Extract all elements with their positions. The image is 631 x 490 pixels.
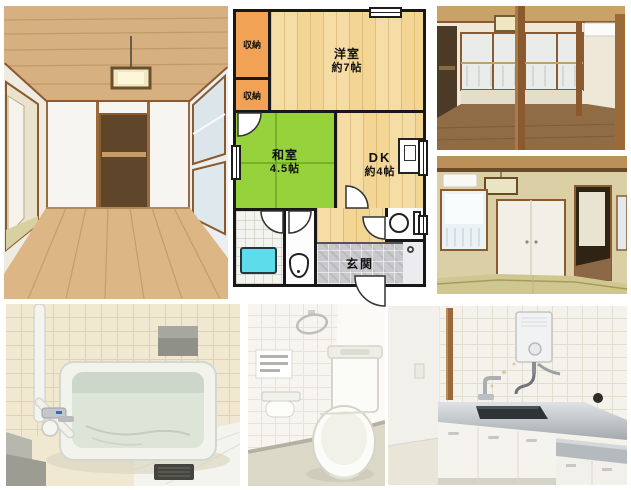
- instruction-sticker: [256, 350, 292, 378]
- side-window: [617, 196, 627, 250]
- doorway-to-wood-room: [575, 186, 611, 280]
- ceiling: [437, 6, 625, 22]
- wall-fitting: [593, 393, 603, 403]
- tatami-room-illustration: [437, 156, 627, 294]
- bathtub: [60, 362, 216, 460]
- bathroom-illustration: [6, 304, 240, 486]
- air-conditioner: [584, 23, 617, 36]
- window: [441, 190, 487, 250]
- floorplan: 収納 収納 洋室 約7帖 和室 4.5帖 DK 約4帖: [233, 9, 426, 287]
- photo-kitchen: [388, 306, 627, 485]
- photo-upper-room: [437, 6, 625, 150]
- wood-pole: [446, 308, 453, 400]
- photo-toilet: [248, 304, 385, 486]
- door-swing-arcs: [236, 12, 423, 284]
- wall-vent: [158, 326, 198, 356]
- outlet: [415, 364, 424, 378]
- living-room-illustration: [4, 6, 228, 299]
- photo-tatami-room: [437, 156, 627, 294]
- air-conditioner: [443, 174, 477, 187]
- kitchen-illustration: [388, 306, 627, 485]
- window-marker: [418, 140, 428, 176]
- toilet-illustration: [248, 304, 385, 486]
- open-closet: [100, 114, 148, 208]
- fusuma-closet: [497, 200, 565, 278]
- floor-drain: [154, 464, 194, 480]
- photo-living-room: [4, 6, 228, 299]
- window-marker: [418, 215, 428, 235]
- ceiling: [437, 156, 627, 172]
- property-photo-collage: 収納 収納 洋室 約7帖 和室 4.5帖 DK 約4帖: [0, 0, 631, 490]
- wood-floor: [4, 208, 228, 299]
- window-marker: [231, 145, 241, 180]
- upper-room-illustration: [437, 6, 625, 150]
- window-marker: [369, 7, 402, 18]
- photo-bathroom: [6, 304, 240, 486]
- floor: [388, 438, 438, 485]
- wood-floor: [437, 104, 625, 150]
